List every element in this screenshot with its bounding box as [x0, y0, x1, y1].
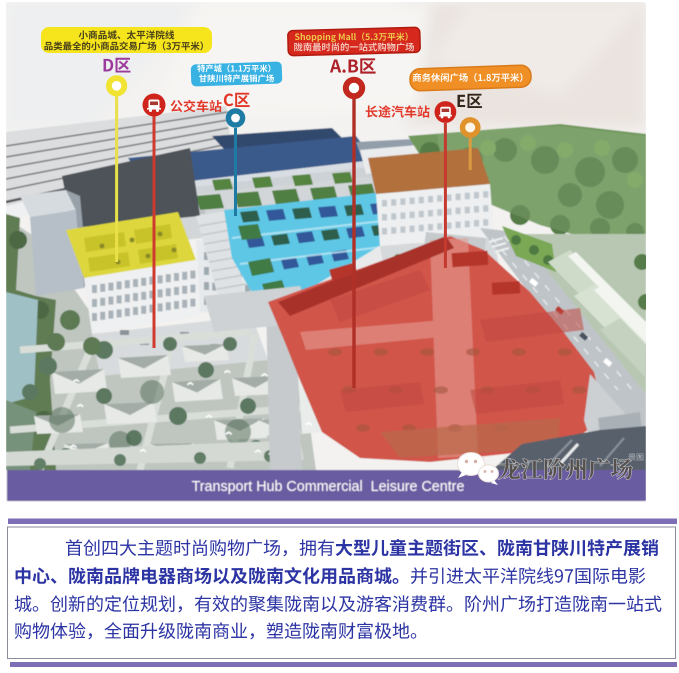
svg-text:Transport Hub Commercial Leis: Transport Hub Commercial Leisure Centre [192, 479, 465, 495]
